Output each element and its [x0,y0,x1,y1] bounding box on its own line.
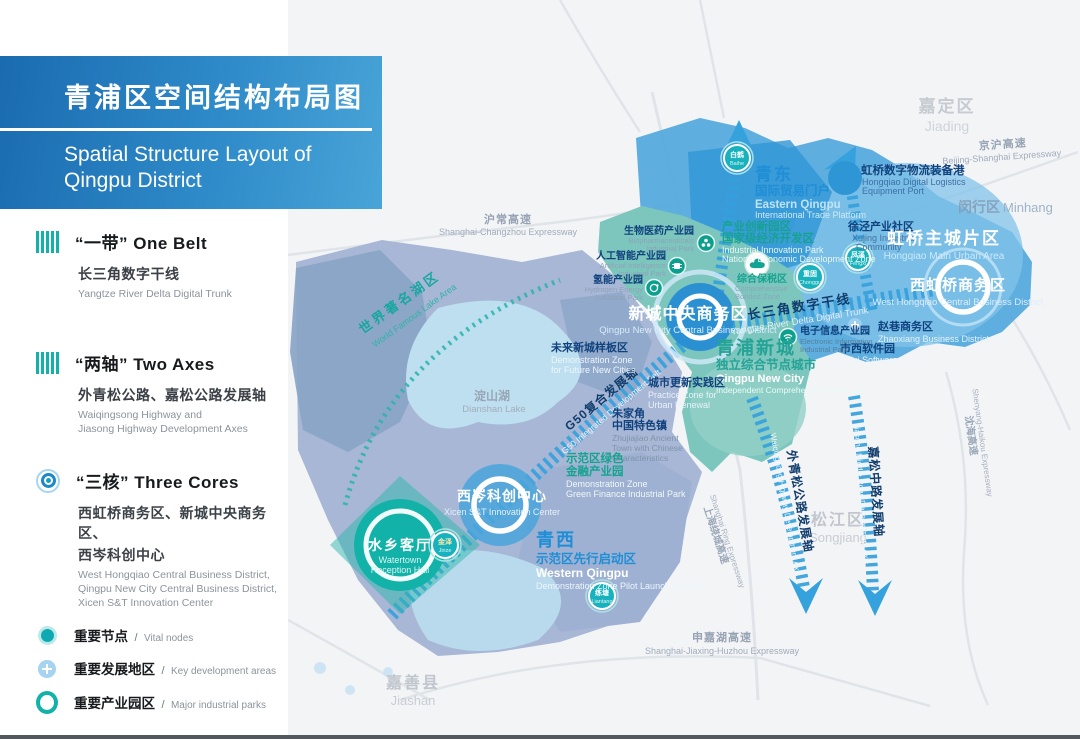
node-chonggu-label-en: Chonggu [799,280,821,286]
cores-target-icon [36,469,60,493]
label-dianshan-en: Dianshan Lake [462,404,525,415]
legend-keydev-sep: / [161,665,164,677]
legend-vital-nodes: 重要节点 / Vital nodes [36,625,193,646]
hydrogen-park-icon [646,280,663,297]
label-minhang: 闵行区 [958,199,1000,215]
label-zhujiajiao-zh1: 朱家角 [611,406,645,420]
label-zhujiajiao-en2: Town with Chinese [612,443,683,453]
label-huchang: 沪常高速 [484,212,532,226]
label-newcity-en2: Independent Comprehensive Node City [716,385,866,395]
label-future: 未来新城样板区 [550,340,628,354]
title-divider [0,128,372,131]
page-title-en-line1: Spatial Structure Layout of [64,142,372,168]
page-title-en-line2: Qingpu District [64,168,372,194]
label-renewal-en2: Urban Renewal [648,400,710,410]
key-development-icon [36,660,58,678]
label-dianshan: 淀山湖 [474,388,510,403]
label-finance-en2: Green Finance Industrial Park [566,489,686,499]
legend-two-axes-zh: 外青松公路、嘉松公路发展轴 [78,385,288,405]
label-hongqiao-main: 虹桥主城片区 [887,228,1001,248]
ai-park-icon [669,258,686,275]
label-renewal-en1: Practice Zone for [648,390,717,400]
label-jiading: 嘉定区 [918,96,976,116]
label-zhujiajiao-zh2: 中国特色镇 [612,418,667,432]
legend-one-belt: “一带” One Belt 长三角数字干线 Yangtze River Delt… [36,229,288,301]
label-westhq: 西虹桥商务区 [910,276,1006,294]
node-baihe-label-en: Baihe [730,161,744,167]
legend-three-cores-en-line1: West Hongqiao Central Business District, [78,568,288,582]
label-xicen-en: Xicen S&T Innovation Center [444,507,560,517]
label-zhaoxiang: 赵巷商务区 [877,319,933,333]
label-westhq-en: West Hongqiao Central Business District [873,297,1044,308]
legend-three-cores-zh2: 西岑科创中心 [78,545,288,565]
label-innov-zh2: 国家级经济开发区 [722,231,814,245]
legend-three-cores: “三核” Three Cores 西虹桥商务区、新城中央商务区、 西岑科创中心 … [36,468,288,611]
label-songjiang: 松江区 [811,510,865,529]
axes-stripes-icon [36,352,59,374]
label-innov-zh1: 产业创新园区 [722,219,791,233]
legend-parks-sep: / [161,699,164,711]
legend-vital-en: Vital nodes [144,633,193,644]
label-songjiang-en: Songjiang [809,530,867,545]
qingpu-map: 白鹤 Baihe 重固 Chonggu 凤溪 Fengxi 金泽 Jinze 练… [288,0,1080,739]
label-shenjiahu-en: Shanghai-Jiaxing-Huzhou Expressway [645,646,800,656]
small-lake [314,662,326,674]
label-minhang-en: Minhang [1003,200,1053,215]
title-block: 青浦区空间结构布局图 Spatial Structure Layout of Q… [0,56,382,209]
page-title-en: Spatial Structure Layout of Qingpu Distr… [64,142,372,195]
belt-stripes-icon [36,231,59,253]
label-logistics: 虹桥数字物流装备港 [861,163,965,177]
small-lake [345,685,355,695]
node-liantang-label-en: Liantang [591,599,612,605]
label-huchang-en: Shanghai-Changzhou Expressway [439,227,578,237]
legend-two-axes: “两轴” Two Axes 外青松公路、嘉松公路发展轴 Waiqingsong … [36,350,288,436]
vital-node-icon [36,629,58,642]
label-newcity-en1: Qingpu New City [716,373,805,385]
logistics-node [828,161,862,195]
label-hongqiao-main-en: Hongqiao Main Urban Area [884,251,1005,262]
label-einfo: 电子信息产业园 [800,324,870,337]
node-jinze-label: 金泽 [437,537,452,546]
legend-vital-sep: / [134,632,137,644]
label-qingxi-en2: Demonstration Zone Pilot Launching Area [536,581,703,591]
label-future-en1: Demonstration Zone [551,355,633,365]
node-jinze-label-en: Jinze [439,548,452,554]
label-einfo-en2: Industrial Park [800,345,848,354]
label-hydrogen-en2: Industrial Park [595,293,643,302]
legend-three-cores-en-line2: Qingpu New City Central Business Distric… [78,582,288,596]
label-future-en2: for Future New Cities [551,365,636,375]
label-qingxi: 青西 [536,530,576,550]
label-cbd-en: Qingpu New City Central Business Distric… [599,325,777,336]
legend-one-belt-title: “一带” One Belt [75,229,207,254]
label-watertown-en1: Watertown [379,555,422,565]
label-logistics-en2: Equipment Port [862,186,925,196]
node-jinze: 金泽 Jinze [429,529,461,561]
page-title-zh: 青浦区空间结构布局图 [64,76,372,115]
legend-parks-zh: 重要产业园区 [74,696,155,711]
label-finance-zh2: 金融产业园 [565,464,624,478]
biopharm-park-icon [698,235,715,252]
label-qingdong-en2: International Trade Platform [755,210,866,220]
label-watertown-en2: Reception Hall [371,565,430,575]
label-shenjiahu: 申嘉湖高速 [692,630,752,644]
legend-one-belt-zh: 长三角数字干线 [78,264,288,284]
label-bonded-en2: Bonded Zone [735,292,780,301]
legend-two-axes-title: “两轴” Two Axes [75,350,215,375]
legend-vital-zh: 重要节点 [74,629,128,644]
node-chonggu: 重固 Chonggu [794,261,826,293]
label-qingxi-en1: Western Qingpu [536,566,628,580]
label-renewal: 城市更新实践区 [648,375,725,389]
label-watertown: 水乡客厅 [368,537,432,553]
label-cbd: 新城中央商务区 [628,304,747,323]
legend-two-axes-en: Waiqingsong Highway and Jiasong Highway … [78,408,288,436]
label-jiading-en: Jiading [925,118,969,134]
label-newcity-sub: 独立综合节点城市 [715,357,817,372]
legend-two-axes-en-line1: Waiqingsong Highway and [78,408,288,422]
legend-three-cores-en-line3: Xicen S&T Innovation Center [78,596,288,610]
label-innov-en2: National Economic Development Zone [722,254,876,264]
label-zhujiajiao-en1: Zhujiajiao Ancient [612,433,679,443]
page: { "title": { "zh": "青浦区空间结构布局图", "en1": … [0,0,1080,739]
industrial-park-icon [36,691,58,714]
label-finance-zh1: 示范区绿色 [565,451,624,465]
legend-industrial-parks: 重要产业园区 / Major industrial parks [36,691,266,714]
legend-parks-en: Major industrial parks [171,700,266,711]
legend-two-axes-en-line2: Jiasong Highway Development Axes [78,422,288,436]
legend-one-belt-en: Yangtze River Delta Digital Trunk [78,287,288,301]
node-baihe: 白鹤 Baihe [721,142,753,174]
label-qingdong: 青东 [755,164,793,184]
label-jiashan: 嘉善县 [385,673,440,692]
label-qingxi-sub: 示范区先行启动区 [535,551,637,566]
node-baihe-label: 白鹤 [730,150,744,159]
label-newcity: 青浦新城 [716,337,796,358]
node-chonggu-label: 重固 [803,269,817,278]
legend-keydev-zh: 重要发展地区 [74,662,155,677]
legend-three-cores-title: “三核” Three Cores [76,468,239,493]
label-qingdong-sub: 国际贸易门户 [755,183,830,198]
legend-three-cores-zh1: 西虹桥商务区、新城中央商务区、 [78,503,288,543]
label-finance-en1: Demonstration Zone [566,479,648,489]
legend-three-cores-en: West Hongqiao Central Business District,… [78,568,288,611]
legend-keydev-en: Key development areas [171,666,276,677]
legend-key-development: 重要发展地区 / Key development areas [36,658,276,679]
bottom-edge-bar [0,735,1080,739]
label-jiashan-en: Jiashan [391,693,436,708]
label-xicen: 西岑科创中心 [457,488,547,504]
label-shixi-en: Shixi Software Park [840,355,919,365]
